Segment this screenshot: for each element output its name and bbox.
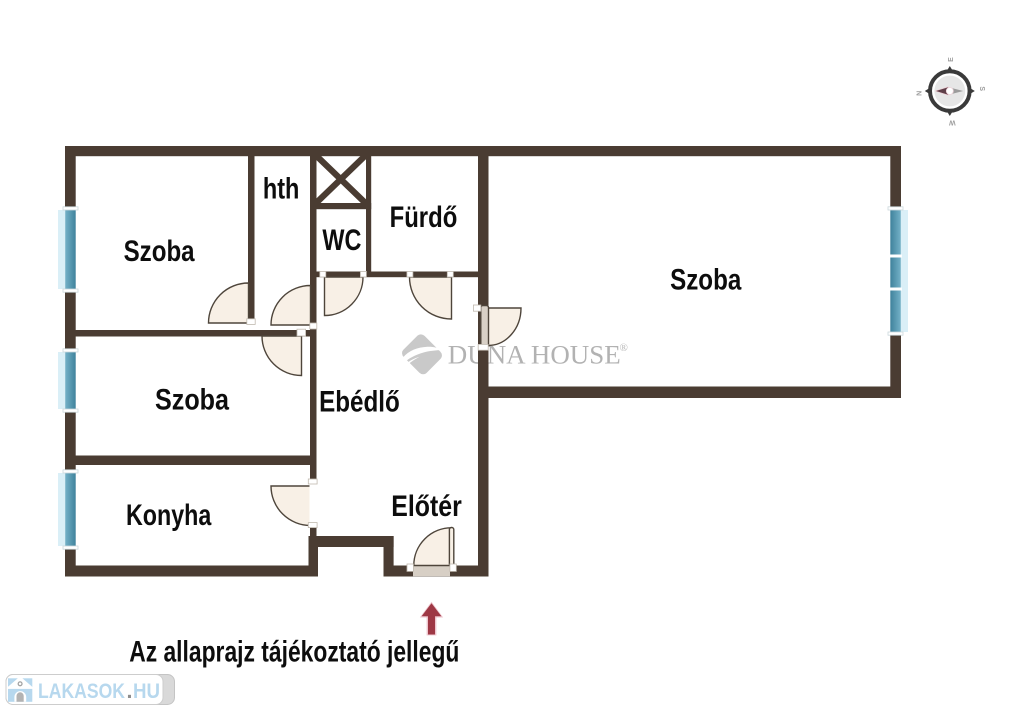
svg-text:Ebédlő: Ebédlő [319,385,400,418]
svg-text:N: N [915,91,922,96]
svg-text:E: E [948,57,955,62]
svg-text:Szoba: Szoba [670,263,741,296]
svg-text:Fürdő: Fürdő [390,201,458,234]
svg-text:HU: HU [133,679,160,703]
svg-text:Szoba: Szoba [124,235,195,268]
svg-text:LAKASOK: LAKASOK [38,679,125,703]
svg-text:Szoba: Szoba [155,384,229,417]
svg-text:.: . [127,679,133,703]
svg-text:S: S [978,86,985,91]
svg-text:Az allaprajz tájékoztató jelle: Az allaprajz tájékoztató jellegű [129,635,459,668]
svg-text:W: W [949,119,956,126]
svg-text:DUNA HOUSE: DUNA HOUSE [448,340,621,370]
svg-text:hth: hth [263,172,300,205]
svg-text:®: ® [620,342,628,354]
svg-text:WC: WC [322,224,361,257]
svg-text:Előtér: Előtér [391,490,462,523]
svg-text:Konyha: Konyha [126,499,212,532]
